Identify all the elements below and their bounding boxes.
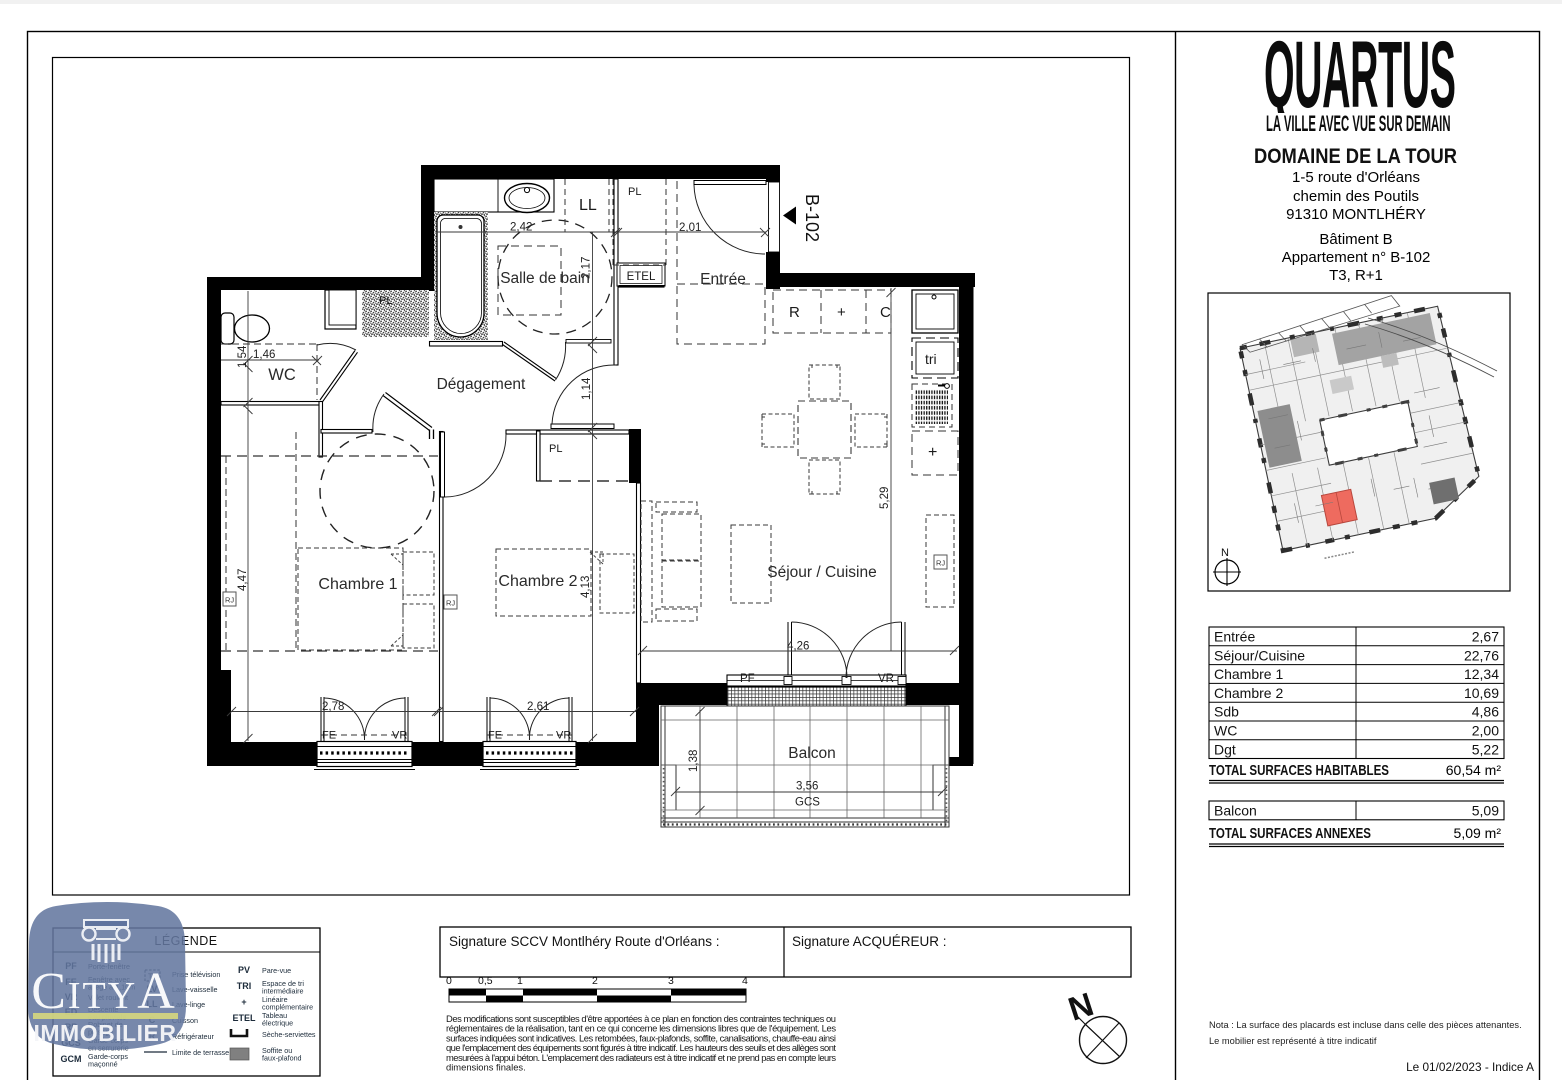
svg-text:PL: PL (628, 186, 641, 198)
svg-text:T3, R+1: T3, R+1 (1329, 267, 1383, 284)
svg-text:maçonné: maçonné (88, 1060, 118, 1069)
svg-text:10,69: 10,69 (1464, 685, 1499, 701)
svg-text:1,46: 1,46 (253, 349, 275, 361)
svg-text:IMMOBILIER: IMMOBILIER (34, 1020, 177, 1046)
svg-text:Appartement n° B-102: Appartement n° B-102 (1282, 249, 1431, 266)
svg-text:4,86: 4,86 (1472, 704, 1499, 720)
svg-text:RJ: RJ (936, 559, 945, 568)
svg-text:3: 3 (668, 975, 674, 987)
svg-text:5,29: 5,29 (879, 487, 891, 509)
svg-text:2,00: 2,00 (1472, 723, 1499, 739)
svg-text:Bâtiment B: Bâtiment B (1319, 231, 1392, 248)
svg-text:1-5 route d'Orléans: 1-5 route d'Orléans (1292, 169, 1420, 186)
svg-text:PV: PV (238, 965, 250, 975)
svg-text:tri: tri (925, 351, 937, 367)
svg-text:WC: WC (1214, 723, 1237, 739)
svg-text:1,38: 1,38 (688, 750, 700, 772)
svg-text:2,42: 2,42 (510, 222, 532, 234)
svg-text:VR: VR (556, 730, 571, 742)
svg-text:5,09: 5,09 (1472, 803, 1499, 819)
svg-text:Balcon: Balcon (788, 745, 835, 762)
svg-text:ETEL: ETEL (232, 1013, 256, 1023)
svg-text:Séjour / Cuisine: Séjour / Cuisine (767, 564, 876, 581)
svg-text:3,56: 3,56 (796, 781, 818, 793)
svg-text:2: 2 (592, 975, 598, 987)
svg-text:Dégagement: Dégagement (437, 376, 526, 393)
svg-text:Signature SCCV Montlhéry Route: Signature SCCV Montlhéry Route d'Orléans… (449, 934, 719, 949)
svg-text:91310 MONTLHÉRY: 91310 MONTLHÉRY (1286, 206, 1426, 223)
svg-text:R: R (789, 304, 800, 321)
svg-text:RJ: RJ (225, 596, 234, 605)
svg-text:FE: FE (322, 730, 336, 742)
svg-text:RJ: RJ (446, 599, 455, 608)
svg-text:Sèche-serviettes: Sèche-serviettes (262, 1030, 316, 1039)
svg-text:dimensions finales.: dimensions finales. (446, 1062, 526, 1073)
svg-text:PL: PL (379, 295, 392, 307)
svg-text:Chambre 1: Chambre 1 (318, 576, 397, 593)
svg-text:faux-plafond: faux-plafond (262, 1054, 302, 1063)
svg-text:+: + (241, 997, 246, 1007)
svg-text:ETEL: ETEL (627, 271, 656, 283)
svg-text:22,76: 22,76 (1464, 647, 1499, 663)
svg-text:Réfrigérateur: Réfrigérateur (172, 1032, 215, 1041)
svg-text:4,47: 4,47 (237, 569, 249, 591)
svg-text:12,34: 12,34 (1464, 666, 1499, 682)
svg-text:GCM: GCM (61, 1054, 82, 1064)
svg-text:N: N (1221, 547, 1229, 559)
svg-text:Salle de bain: Salle de bain (500, 270, 590, 287)
svg-text:B-102: B-102 (802, 194, 822, 242)
svg-text:5,22: 5,22 (1472, 741, 1499, 757)
svg-text:DOMAINE DE LA TOUR: DOMAINE DE LA TOUR (1254, 144, 1457, 168)
svg-text:LL: LL (579, 197, 597, 214)
svg-text:5,09 m²: 5,09 m² (1454, 825, 1502, 841)
svg-text:2,61: 2,61 (527, 701, 549, 713)
svg-text:Balcon: Balcon (1214, 803, 1257, 819)
svg-text:Nota : La surface des placards: Nota : La surface des placards est inclu… (1209, 1020, 1522, 1030)
svg-text:1,54: 1,54 (237, 345, 249, 368)
svg-text:0,5: 0,5 (478, 975, 493, 987)
svg-text:Signature ACQUÉREUR :: Signature ACQUÉREUR : (792, 934, 947, 949)
svg-text:WC: WC (268, 366, 296, 384)
svg-text:LA VILLE AVEC VUE SUR DEMAIN: LA VILLE AVEC VUE SUR DEMAIN (1266, 111, 1451, 136)
svg-text:TOTAL SURFACES HABITABLES: TOTAL SURFACES HABITABLES (1209, 763, 1389, 779)
svg-text:VR: VR (392, 730, 407, 742)
svg-text:Le 01/02/2023 - Indice A: Le 01/02/2023 - Indice A (1406, 1060, 1534, 1074)
svg-text:VR: VR (878, 673, 894, 685)
svg-text:1: 1 (517, 975, 523, 987)
svg-text:PL: PL (549, 443, 562, 455)
svg-text:Chambre 1: Chambre 1 (1214, 666, 1283, 682)
svg-text:60,54 m²: 60,54 m² (1446, 762, 1502, 778)
svg-text:TRI: TRI (237, 981, 252, 991)
svg-text:2,78: 2,78 (322, 701, 344, 713)
svg-text:TOTAL SURFACES ANNEXES: TOTAL SURFACES ANNEXES (1209, 826, 1371, 842)
svg-text:chemin des Poutils: chemin des Poutils (1293, 188, 1419, 205)
svg-text:Dgt: Dgt (1214, 741, 1236, 757)
svg-text:+: + (928, 444, 937, 461)
svg-text:C: C (880, 304, 891, 321)
svg-text:Entrée: Entrée (1214, 629, 1255, 645)
svg-text:FE: FE (488, 730, 502, 742)
svg-text:1,14: 1,14 (581, 377, 593, 400)
svg-text:Chambre 2: Chambre 2 (1214, 685, 1283, 701)
svg-text:électrique: électrique (262, 1019, 293, 1028)
svg-text:Limite de terrasse: Limite de terrasse (172, 1048, 229, 1057)
svg-text:PF: PF (740, 673, 755, 685)
svg-text:Pare-vue: Pare-vue (262, 966, 291, 975)
svg-text:Séjour/Cuisine: Séjour/Cuisine (1214, 647, 1305, 663)
svg-text:GCS: GCS (795, 797, 820, 809)
svg-text:4,26: 4,26 (787, 641, 809, 653)
svg-text:4: 4 (742, 975, 748, 987)
svg-text:Le mobilier est représenté à t: Le mobilier est représenté à titre indic… (1209, 1036, 1377, 1046)
svg-text:Entrée: Entrée (700, 271, 746, 288)
svg-text:4,13: 4,13 (580, 576, 592, 598)
svg-text:2,67: 2,67 (1472, 629, 1499, 645)
svg-text:Chambre 2: Chambre 2 (498, 573, 577, 590)
svg-text:2,01: 2,01 (679, 222, 701, 234)
svg-text:Sdb: Sdb (1214, 704, 1239, 720)
svg-text:0: 0 (446, 975, 452, 987)
svg-text:+: + (837, 304, 846, 321)
